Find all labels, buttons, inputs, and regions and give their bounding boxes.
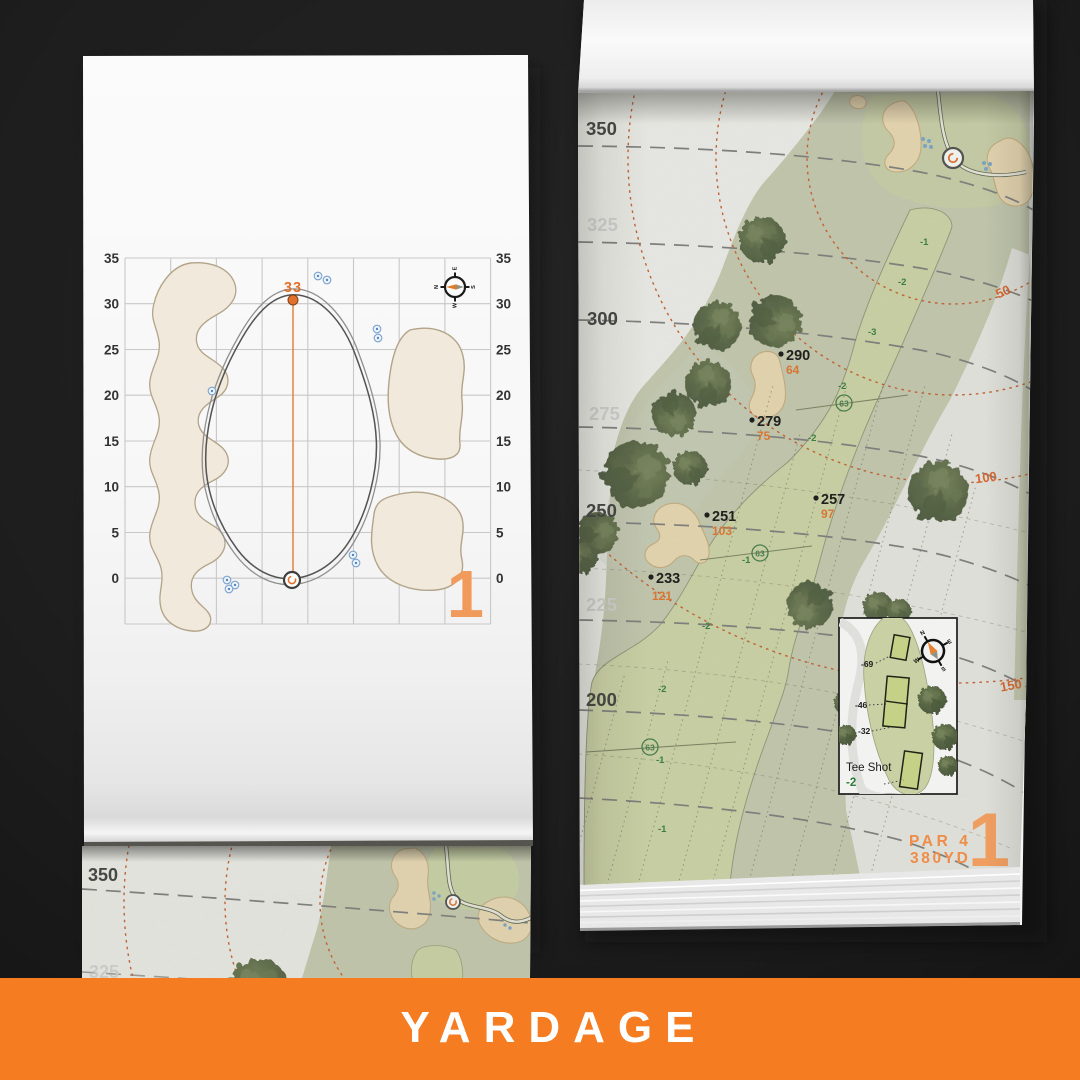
svg-text:YARDAGE: YARDAGE [401,1003,708,1052]
svg-text:20: 20 [496,388,511,403]
svg-text:Tee Shot: Tee Shot [846,762,892,774]
svg-text:30: 30 [496,297,511,312]
svg-text:10: 10 [496,480,511,495]
svg-text:0: 0 [496,571,504,586]
svg-text:-46: -46 [855,700,868,710]
svg-text:W: W [452,302,458,308]
svg-text:10: 10 [104,480,119,495]
svg-text:25: 25 [104,343,120,358]
svg-text:N: N [434,285,440,289]
svg-text:-69: -69 [861,659,874,669]
svg-text:380YD: 380YD [910,850,970,867]
svg-text:-2: -2 [846,777,856,789]
svg-text:25: 25 [496,343,512,358]
svg-text:0: 0 [111,571,119,586]
svg-text:15: 15 [496,434,512,449]
svg-text:-32: -32 [858,726,871,736]
svg-text:35: 35 [104,251,120,266]
svg-text:20: 20 [104,388,119,403]
svg-text:35: 35 [496,251,512,266]
svg-text:15: 15 [104,434,120,449]
svg-text:E: E [452,266,458,270]
svg-text:S: S [471,285,477,289]
svg-text:33: 33 [284,280,302,296]
svg-text:1: 1 [447,557,484,632]
svg-text:PAR 4: PAR 4 [909,833,972,850]
svg-text:30: 30 [104,297,119,312]
svg-text:5: 5 [111,526,119,541]
svg-text:5: 5 [496,526,504,541]
